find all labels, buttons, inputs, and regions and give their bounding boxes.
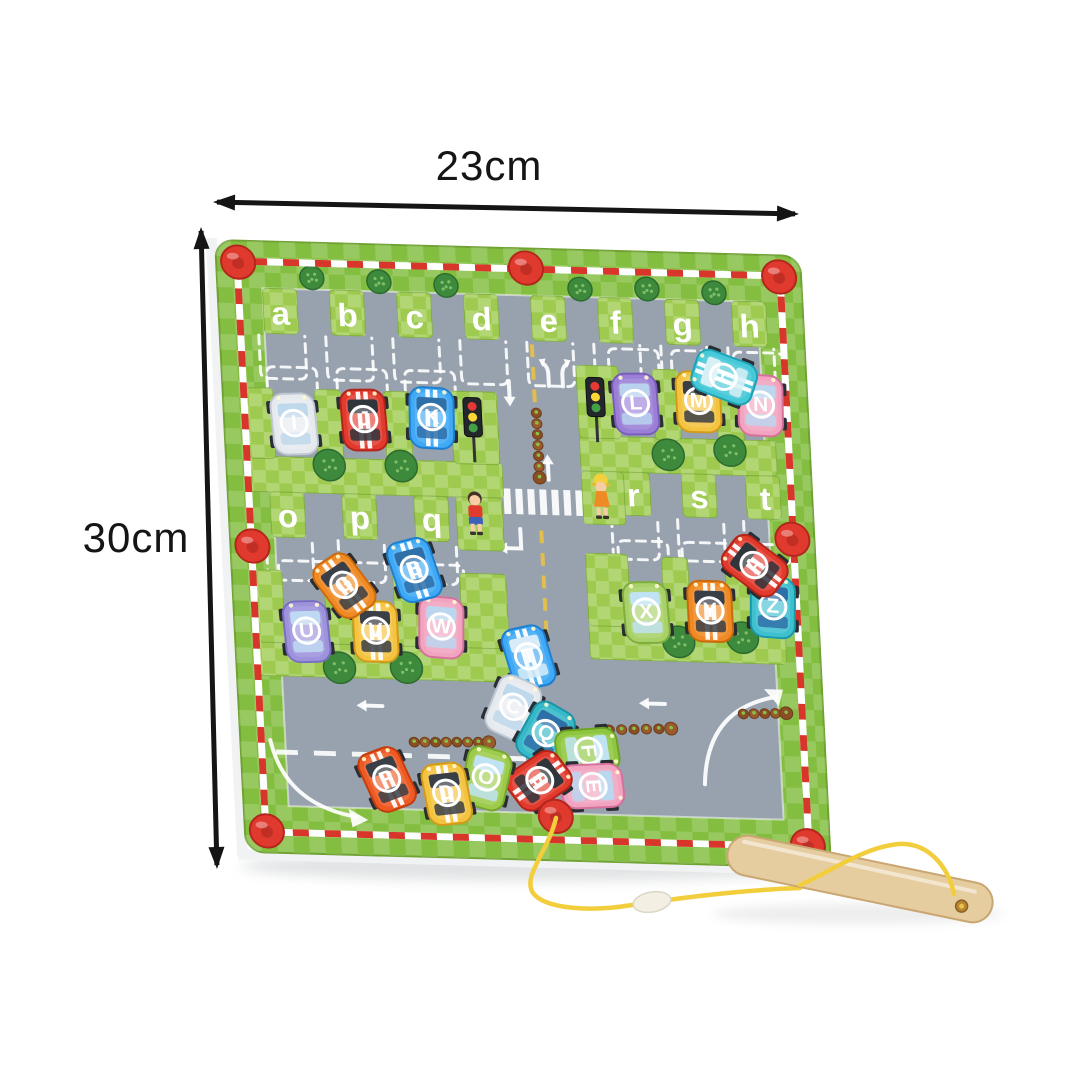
- kid-leg: [471, 524, 475, 533]
- border-plaid-cell: [799, 412, 809, 428]
- plaid-cell: [421, 462, 435, 475]
- plaid-cell: [626, 658, 639, 660]
- plaid-cell: [708, 495, 717, 508]
- plaid-cell: [744, 440, 757, 445]
- plaid-cell: [261, 388, 272, 394]
- car-Y: Y: [683, 580, 738, 642]
- border-plaid-cell: [345, 275, 362, 291]
- slot-letter-q: q: [421, 501, 443, 538]
- plaid-cell: [251, 444, 265, 457]
- plaid-cell: [594, 555, 608, 568]
- plaid-cell: [295, 535, 306, 538]
- border-plaid-cell: [816, 757, 826, 773]
- border-plaid-cell: [279, 242, 296, 258]
- border-plaid-cell: [660, 816, 677, 831]
- plaid-cell: [457, 666, 471, 679]
- plaid-cell: [454, 463, 460, 464]
- plaid-cell: [747, 483, 761, 496]
- plaid-cell: [431, 665, 445, 678]
- plaid-cell: [275, 661, 289, 674]
- plaid-cell: [704, 660, 717, 662]
- border-plaid-cell: [756, 819, 773, 834]
- border-plaid-cell: [818, 788, 828, 804]
- plaid-cell: [602, 441, 616, 454]
- plaid-cell: [467, 603, 481, 616]
- kid-leg: [604, 508, 608, 517]
- plaid-cell: [490, 294, 497, 298]
- plaid-cell: [272, 534, 282, 537]
- plaid-cell: [693, 456, 707, 469]
- border-plaid-cell: [693, 848, 710, 864]
- plaid-cell: [292, 484, 305, 493]
- plaid-cell: [293, 492, 304, 496]
- width-dimension-arrow: [213, 194, 799, 221]
- plaid-cell: [259, 597, 273, 610]
- plaid-cell: [748, 509, 761, 519]
- car-letter-J: J: [357, 408, 371, 431]
- kid-leg: [597, 508, 601, 517]
- car-letter-N: N: [753, 393, 769, 417]
- plaid-cell: [638, 646, 652, 659]
- plaid-cell: [652, 369, 663, 379]
- plaid-cell: [750, 302, 763, 306]
- plaid-cell: [492, 578, 506, 591]
- border-plaid-cell: [341, 838, 358, 854]
- plaid-cell: [464, 294, 477, 298]
- border-plaid-cell: [242, 773, 259, 789]
- border-plaid-cell: [692, 817, 709, 832]
- plaid-cell: [271, 570, 282, 572]
- border-plaid-cell: [810, 632, 820, 648]
- plaid-cell: [260, 623, 274, 636]
- plaid-cell: [600, 340, 610, 343]
- border-plaid-cell: [815, 726, 825, 742]
- plaid-cell: [473, 463, 487, 476]
- car-letter-X: X: [638, 600, 654, 623]
- crosswalk-stripe: [503, 488, 511, 514]
- plaid-cell: [615, 454, 629, 467]
- border-plaid-cell: [405, 840, 422, 856]
- line: [548, 463, 549, 480]
- plaid-cell: [427, 322, 433, 335]
- plaid-cell: [773, 484, 781, 497]
- border-plaid-cell: [234, 616, 251, 632]
- plaid-cell: [371, 495, 376, 499]
- plaid-cell: [662, 570, 674, 583]
- plaid-cell: [479, 574, 492, 578]
- border-plaid-cell: [309, 837, 326, 853]
- border-plaid-cell: [373, 839, 390, 855]
- plaid-cell: [360, 291, 363, 295]
- height-dimension-label: 30cm: [83, 514, 190, 562]
- plaid-cell: [620, 298, 631, 302]
- border-plaid-cell: [343, 244, 360, 260]
- crosswalk-stripe: [527, 489, 535, 515]
- slot-letter-o: o: [277, 497, 299, 534]
- border-plaid-cell: [601, 282, 618, 298]
- car-letter-E: E: [581, 779, 606, 794]
- plaid-cell: [338, 625, 352, 638]
- plaid-cell: [491, 311, 499, 324]
- plaid-cell: [291, 458, 305, 471]
- dimension-line: [217, 202, 795, 214]
- border-plaid-cell: [220, 334, 237, 350]
- plaid-cell: [301, 662, 315, 675]
- plaid-cell: [265, 457, 279, 470]
- car-letter-F: F: [576, 744, 601, 758]
- plaid-cell: [263, 673, 276, 675]
- plaid-cell: [373, 537, 378, 540]
- plaid-cell: [621, 315, 633, 328]
- plaid-cell: [692, 439, 705, 444]
- plaid-cell: [768, 649, 782, 662]
- plaid-cell: [367, 676, 380, 678]
- plaid-cell: [586, 568, 596, 581]
- border-plaid-cell: [226, 459, 243, 475]
- kid-shoe: [596, 515, 602, 519]
- crosswalk-stripe: [539, 489, 547, 515]
- border-plaid-cell: [783, 725, 800, 741]
- car-J: J: [335, 390, 392, 451]
- plaid-cell: [330, 294, 336, 307]
- border-plaid-cell: [409, 277, 426, 293]
- plaid-cell: [623, 340, 634, 343]
- plaid-cell: [628, 442, 642, 455]
- plaid-cell: [489, 527, 503, 540]
- car-letter-W: W: [431, 614, 451, 638]
- border-plaid-cell: [473, 278, 490, 294]
- border-plaid-cell: [237, 679, 254, 695]
- plaid-cell: [500, 489, 503, 498]
- slot-letter-f: f: [609, 304, 622, 341]
- dimension-arrowhead: [213, 194, 235, 210]
- plaid-cell: [640, 437, 653, 442]
- plaid-cell: [363, 333, 366, 336]
- plaid-cell: [396, 486, 409, 495]
- border-plaid-cell: [537, 280, 554, 296]
- plaid-cell: [372, 511, 378, 524]
- plaid-cell: [580, 441, 590, 454]
- slot-letter-b: b: [337, 296, 359, 333]
- slot-letter-a: a: [271, 295, 292, 332]
- plaid-cell: [672, 558, 686, 571]
- plaid-cell: [394, 436, 408, 449]
- plaid-cell: [279, 471, 293, 484]
- border-plaid-cell: [784, 756, 801, 772]
- plaid-cell: [600, 657, 613, 659]
- car-letter-K: K: [424, 405, 440, 429]
- car-U: U: [278, 601, 336, 663]
- plaid-cell: [447, 462, 461, 475]
- plaid-cell: [675, 608, 689, 621]
- plaid-cell: [344, 485, 357, 494]
- border-plaid-cell: [375, 244, 392, 260]
- plaid-cell: [419, 678, 432, 680]
- plaid-cell: [403, 614, 417, 627]
- plaid-cell: [266, 483, 279, 492]
- plaid-cell: [734, 343, 740, 346]
- plaid-cell: [590, 644, 600, 657]
- border-plaid-cell: [729, 285, 746, 301]
- border-plaid-cell: [218, 303, 235, 319]
- plaid-cell: [468, 628, 482, 641]
- border-plaid-cell: [469, 841, 486, 857]
- slot-letter-h: h: [739, 307, 761, 344]
- kid-leg: [478, 524, 482, 533]
- plaid-cell: [483, 667, 497, 680]
- plaid-cell: [250, 419, 264, 432]
- border-plaid-cell: [663, 252, 680, 268]
- plaid-cell: [456, 497, 462, 501]
- plaid-cell: [745, 458, 759, 471]
- border-plaid-cell: [311, 243, 328, 259]
- border-plaid-cell: [813, 694, 823, 710]
- plaid-cell: [347, 536, 360, 539]
- plaid-cell: [643, 480, 651, 493]
- plaid-cell: [596, 581, 610, 594]
- plaid-cell: [461, 475, 475, 488]
- plaid-cell: [263, 305, 271, 318]
- border-plaid-cell: [437, 840, 454, 856]
- plaid-cell: [282, 289, 295, 293]
- plaid-cell: [598, 632, 612, 645]
- border-plaid-cell: [727, 254, 744, 270]
- slot-letter-g: g: [672, 306, 694, 343]
- border-plaid-cell: [628, 815, 645, 830]
- plaid-cell: [618, 505, 626, 518]
- car-letter-L: L: [628, 392, 643, 415]
- plaid-cell: [499, 464, 500, 465]
- plaid-cell: [479, 590, 493, 603]
- plaid-cell: [458, 539, 465, 550]
- plaid-cell: [289, 674, 302, 676]
- plaid-cell: [460, 590, 467, 603]
- plaid-cell: [582, 492, 592, 505]
- plaid-cell: [612, 645, 626, 658]
- border-plaid-cell: [665, 284, 682, 300]
- plaid-cell: [585, 553, 594, 555]
- slot-letter-c: c: [405, 298, 425, 335]
- kid-shoe: [603, 516, 609, 520]
- plaid-cell: [249, 393, 263, 406]
- plaid-cell: [617, 480, 625, 493]
- plaid-cell: [357, 473, 371, 486]
- plaid-cell: [369, 460, 383, 473]
- border-plaid-cell: [501, 842, 518, 858]
- plaid-cell: [485, 451, 499, 464]
- plaid-cell: [483, 400, 497, 413]
- border-plaid-cell: [796, 350, 806, 366]
- plaid-cell: [481, 616, 495, 629]
- board: abcdefghopqrstIJKLMNHUVWGBXYZATCQFESODP: [206, 238, 833, 876]
- border-plaid-cell: [596, 815, 613, 830]
- border-plaid-cell: [407, 245, 424, 261]
- plaid-cell: [716, 648, 730, 661]
- plaid-cell: [672, 299, 685, 303]
- border-plaid-cell: [794, 318, 804, 334]
- car-letter-V: V: [368, 619, 383, 642]
- border-plaid-cell: [239, 710, 256, 726]
- border-plaid-cell: [599, 251, 616, 267]
- border-plaid-cell: [565, 844, 582, 860]
- border-plaid-cell: [225, 428, 242, 444]
- car-L: L: [607, 374, 664, 435]
- car-letter-Y: Y: [703, 599, 718, 622]
- slot-letter-r: r: [626, 476, 641, 513]
- line: [509, 381, 510, 398]
- border-plaid-cell: [786, 787, 803, 803]
- plaid-cell: [597, 297, 607, 301]
- plaid-cell: [598, 366, 612, 378]
- border-plaid-cell: [724, 818, 741, 833]
- plaid-cell: [448, 488, 461, 497]
- car-I: I: [265, 393, 323, 455]
- plaid-cell: [391, 391, 404, 397]
- plaid-cell: [265, 330, 272, 333]
- maze-tab: [256, 570, 286, 643]
- plaid-cell: [678, 659, 691, 661]
- product-photo: abcdefghopqrstIJKLMNHUVWGBXYZATCQFESODP …: [0, 0, 1080, 1080]
- border-plaid-cell: [228, 491, 245, 507]
- kid-shirt: [468, 505, 483, 518]
- plaid-cell: [331, 319, 337, 332]
- plaid-cell: [758, 446, 772, 459]
- plaid-cell: [399, 334, 402, 337]
- plaid-cell: [774, 510, 781, 520]
- crosswalk-stripe: [563, 490, 571, 516]
- dimension-arrowhead: [777, 206, 799, 222]
- border-plaid-cell: [236, 647, 253, 663]
- plaid-cell: [345, 494, 358, 498]
- plaid-cell: [318, 484, 331, 493]
- plaid-cell: [598, 314, 609, 327]
- plaid-cell: [493, 603, 507, 616]
- plaid-cell: [459, 450, 473, 463]
- car-letter-Z: Z: [766, 594, 779, 618]
- crosswalk-stripe: [515, 489, 523, 515]
- plaid-cell: [253, 470, 267, 483]
- plaid-cell: [484, 425, 498, 438]
- plaid-cell: [262, 648, 276, 661]
- plaid-cell: [730, 661, 743, 663]
- border-plaid-cell: [797, 381, 807, 397]
- plaid-cell: [460, 573, 466, 577]
- border-plaid-cell: [629, 846, 646, 862]
- border-plaid-cell: [439, 246, 456, 262]
- plaid-cell: [482, 641, 495, 648]
- plaid-cell: [707, 474, 715, 482]
- border-plaid-cell: [404, 809, 421, 824]
- border-plaid-cell: [802, 475, 812, 491]
- plaid-cell: [771, 459, 777, 472]
- plaid-cell: [334, 290, 347, 294]
- plaid-cell: [396, 292, 399, 296]
- border-plaid-cell: [308, 807, 325, 822]
- plaid-cell: [445, 678, 458, 680]
- crosswalk-stripe: [551, 490, 559, 516]
- plaid-cell: [470, 654, 484, 667]
- plaid-cell: [423, 496, 436, 500]
- plaid-cell: [620, 556, 628, 569]
- plaid-cell: [770, 441, 775, 446]
- car-K: K: [405, 386, 458, 450]
- plaid-cell: [493, 337, 500, 340]
- border-plaid-cell: [232, 585, 249, 601]
- plaid-cell: [270, 492, 280, 496]
- car-W: W: [415, 595, 467, 660]
- plaid-cell: [412, 292, 425, 296]
- slot-letter-p: p: [349, 499, 371, 536]
- plaid-cell: [466, 577, 480, 590]
- plaid-cell: [477, 539, 491, 550]
- plaid-cell: [262, 288, 269, 292]
- kid-shoe: [477, 532, 483, 536]
- border-plaid-cell: [807, 569, 817, 585]
- border-plaid-cell: [808, 600, 818, 616]
- plaid-cell: [644, 506, 651, 516]
- border-plaid-cell: [820, 821, 830, 836]
- plaid-cell: [542, 296, 555, 300]
- plaid-cell: [607, 554, 620, 556]
- border-plaid-cell: [223, 397, 240, 413]
- plaid-cell: [589, 619, 598, 626]
- slot-letter-d: d: [471, 300, 493, 337]
- plaid-cell: [681, 469, 694, 474]
- string-bead: [632, 889, 673, 915]
- plaid-cell: [578, 415, 588, 428]
- border-plaid-cell: [597, 845, 614, 861]
- plaid-cell: [652, 659, 665, 661]
- plaid-cell: [731, 301, 737, 305]
- border-plaid-cell: [631, 251, 648, 267]
- dimension-arrowhead: [208, 847, 224, 869]
- plaid-cell: [581, 466, 590, 471]
- plaid-cell: [435, 475, 449, 488]
- plaid-cell: [576, 365, 586, 377]
- plaid-cell: [584, 517, 593, 524]
- slot-letter-e: e: [539, 302, 559, 339]
- border-plaid-cell: [695, 253, 712, 269]
- slot-letter-s: s: [689, 478, 709, 515]
- plaid-cell: [733, 470, 746, 475]
- plaid-cell: [608, 569, 622, 582]
- border-plaid-cell: [221, 365, 238, 381]
- plaid-cell: [505, 574, 506, 578]
- plaid-cell: [577, 390, 587, 403]
- plaid-cell: [732, 318, 739, 331]
- plaid-cell: [426, 297, 432, 310]
- plaid-cell: [487, 476, 501, 489]
- width-dimension-label: 23cm: [436, 142, 543, 190]
- border-plaid-cell: [240, 741, 257, 757]
- plaid-cell: [457, 514, 464, 527]
- border-plaid-cell: [661, 847, 678, 863]
- plaid-cell: [258, 572, 272, 585]
- border-plaid-cell: [801, 444, 811, 460]
- plaid-cell: [588, 428, 601, 438]
- plaid-cell: [370, 486, 383, 495]
- plaid-cell: [422, 487, 435, 496]
- border-plaid-cell: [804, 506, 814, 522]
- plaid-cell: [392, 410, 406, 423]
- plaid-cell: [314, 389, 326, 395]
- slot-letter-t: t: [759, 480, 772, 517]
- plaid-cell: [425, 538, 438, 541]
- plaid-cell: [274, 636, 285, 643]
- border-plaid-cell: [471, 247, 488, 263]
- kid-shoe: [470, 531, 476, 535]
- border-plaid-cell: [793, 287, 803, 303]
